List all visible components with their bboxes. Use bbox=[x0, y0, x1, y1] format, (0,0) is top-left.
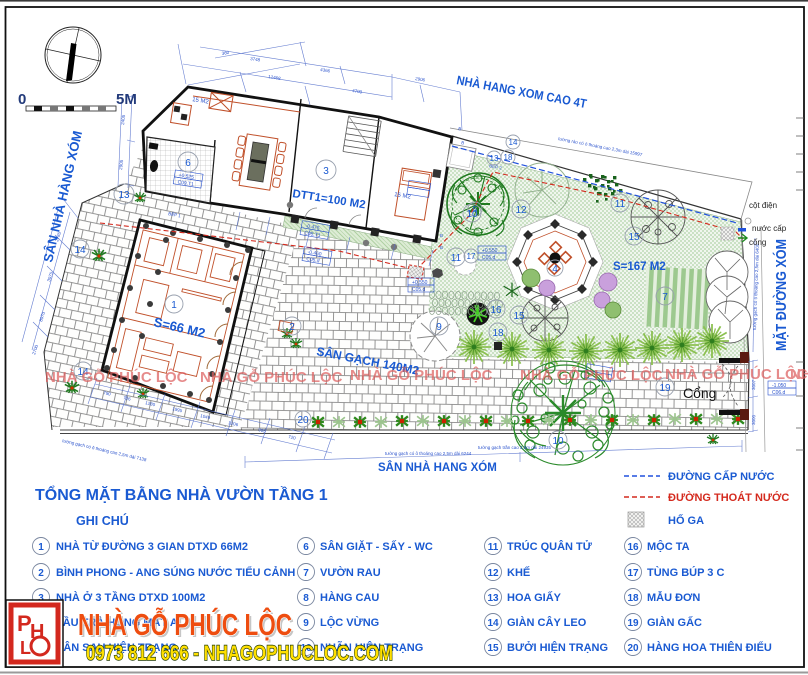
svg-text:3000: 3000 bbox=[751, 414, 756, 425]
svg-text:11: 11 bbox=[488, 542, 499, 553]
svg-text:6: 6 bbox=[303, 542, 309, 553]
svg-text:C06.d: C06.d bbox=[772, 390, 786, 396]
svg-text:12: 12 bbox=[515, 205, 527, 216]
svg-text:B: B bbox=[440, 233, 443, 238]
svg-text:+0.550: +0.550 bbox=[412, 280, 428, 286]
svg-text:L: L bbox=[20, 638, 31, 658]
svg-text:17: 17 bbox=[467, 252, 476, 261]
svg-text:NHÀ GỖ PHÚC LỘC: NHÀ GỖ PHÚC LỘC bbox=[78, 606, 292, 642]
svg-text:14: 14 bbox=[487, 618, 499, 629]
svg-text:BƯỞI HIỆN TRẠNG: BƯỞI HIỆN TRẠNG bbox=[507, 641, 608, 654]
svg-text:S=167 M2: S=167 M2 bbox=[613, 261, 666, 273]
svg-text:19: 19 bbox=[627, 618, 639, 629]
svg-text:17: 17 bbox=[627, 568, 639, 579]
svg-text:nước cấp: nước cấp bbox=[752, 224, 787, 233]
svg-text:7: 7 bbox=[303, 568, 309, 579]
svg-text:1: 1 bbox=[38, 542, 44, 553]
svg-text:7: 7 bbox=[662, 292, 668, 303]
svg-text:NHÀ TỪ ĐƯỜNG 3 GIAN DTXD 66M2: NHÀ TỪ ĐƯỜNG 3 GIAN DTXD 66M2 bbox=[56, 540, 248, 553]
svg-text:NHÀ GỖ PHÚC LỘC: NHÀ GỖ PHÚC LỘC bbox=[200, 368, 343, 386]
svg-text:tường gạch trần cao 2,5m dài 2: tường gạch trần cao 2,5m dài 24935 bbox=[478, 445, 552, 450]
svg-text:HÀNG HOA THIÊN ĐIỂU: HÀNG HOA THIÊN ĐIỂU bbox=[647, 641, 772, 654]
svg-text:5M: 5M bbox=[116, 91, 137, 108]
svg-text:14: 14 bbox=[74, 245, 86, 256]
svg-text:13: 13 bbox=[118, 190, 130, 201]
svg-text:2: 2 bbox=[38, 568, 44, 579]
svg-text:C05.d: C05.d bbox=[482, 255, 496, 261]
svg-text:GIÀN GẤC: GIÀN GẤC bbox=[647, 616, 702, 629]
svg-text:0: 0 bbox=[18, 91, 26, 108]
svg-text:B: B bbox=[440, 245, 443, 250]
svg-text:tường gạch có ô thoáng cao 2,5: tường gạch có ô thoáng cao 2,5m dài 6244 bbox=[385, 451, 472, 456]
svg-text:8: 8 bbox=[303, 593, 309, 604]
svg-text:KHẾ: KHẾ bbox=[507, 566, 530, 579]
svg-text:Cổng: Cổng bbox=[683, 385, 716, 401]
svg-text:ĐƯỜNG THOÁT NƯỚC: ĐƯỜNG THOÁT NƯỚC bbox=[668, 491, 789, 504]
svg-text:6: 6 bbox=[185, 158, 191, 169]
svg-text:MẶT ĐƯỜNG XÓM: MẶT ĐƯỜNG XÓM bbox=[772, 239, 790, 351]
svg-text:VƯỜN RAU: VƯỜN RAU bbox=[320, 566, 381, 579]
svg-text:GHI CHÚ: GHI CHÚ bbox=[76, 513, 129, 528]
svg-text:3: 3 bbox=[323, 166, 329, 177]
svg-text:16: 16 bbox=[490, 305, 502, 316]
svg-text:13: 13 bbox=[490, 154, 499, 163]
svg-text:NHÀ GỖ PHÚC LỘC: NHÀ GỖ PHÚC LỘC bbox=[520, 366, 663, 384]
svg-text:LỘC VỪNG: LỘC VỪNG bbox=[320, 616, 379, 629]
svg-text:2: 2 bbox=[289, 322, 295, 333]
svg-text:NHÀ GỖ PHÚC LỘC: NHÀ GỖ PHÚC LỘC bbox=[45, 368, 188, 386]
svg-text:GIÀN CÂY LEO: GIÀN CÂY LEO bbox=[507, 616, 587, 629]
svg-text:HOA GIẤY: HOA GIẤY bbox=[507, 591, 562, 604]
svg-text:cống: cống bbox=[749, 238, 766, 247]
svg-text:18: 18 bbox=[504, 153, 513, 162]
svg-text:C05.d: C05.d bbox=[412, 287, 426, 293]
svg-text:SÂN GIẶT - SẤY - WC: SÂN GIẶT - SẤY - WC bbox=[320, 540, 433, 553]
svg-text:TÙNG BÚP 3 C: TÙNG BÚP 3 C bbox=[647, 566, 724, 579]
svg-text:5: 5 bbox=[473, 205, 478, 214]
svg-text:BÌNH PHONG - ANG SÚNG NƯỚC TIỂ: BÌNH PHONG - ANG SÚNG NƯỚC TIỂU CẢNH bbox=[56, 566, 295, 579]
svg-text:MỘC TA: MỘC TA bbox=[647, 540, 690, 553]
svg-text:+0.550: +0.550 bbox=[482, 248, 498, 254]
svg-text:14: 14 bbox=[509, 138, 518, 147]
svg-text:NH: NH bbox=[790, 366, 808, 383]
svg-text:TỔNG MẶT BẰNG NHÀ VƯỜN TẦNG 1: TỔNG MẶT BẰNG NHÀ VƯỜN TẦNG 1 bbox=[35, 485, 328, 504]
svg-text:NHÀ Ở 3 TẦNG DTXD 100M2: NHÀ Ở 3 TẦNG DTXD 100M2 bbox=[56, 591, 205, 604]
svg-text:NHÀ GỖ PHÚC LỘC: NHÀ GỖ PHÚC LỘC bbox=[350, 366, 493, 384]
svg-text:18: 18 bbox=[492, 328, 504, 339]
svg-text:11: 11 bbox=[451, 253, 462, 264]
svg-text:HÀNG CAU: HÀNG CAU bbox=[320, 591, 379, 604]
svg-text:NHÀ GỖ PHÚC LỘC: NHÀ GỖ PHÚC LỘC bbox=[665, 365, 808, 383]
svg-text:cột điện: cột điện bbox=[749, 201, 777, 210]
svg-text:15: 15 bbox=[487, 643, 499, 654]
svg-text:19: 19 bbox=[659, 383, 671, 394]
svg-text:12: 12 bbox=[487, 568, 499, 579]
svg-text:18: 18 bbox=[627, 593, 639, 604]
svg-text:15: 15 bbox=[628, 232, 640, 243]
svg-text:-1.050: -1.050 bbox=[772, 383, 786, 389]
svg-text:20: 20 bbox=[627, 643, 639, 654]
svg-text:SÂN NHÀ HANG XÓM: SÂN NHÀ HANG XÓM bbox=[378, 461, 497, 474]
svg-text:11: 11 bbox=[615, 199, 626, 210]
svg-text:16: 16 bbox=[627, 542, 639, 553]
svg-text:15: 15 bbox=[513, 311, 525, 322]
svg-text:TRÚC QUÂN TỬ: TRÚC QUÂN TỬ bbox=[507, 540, 593, 553]
svg-text:4: 4 bbox=[552, 264, 558, 275]
svg-text:10: 10 bbox=[552, 436, 564, 447]
svg-text:0973 812 666 - NHAGOPHUCLOC.CO: 0973 812 666 - NHAGOPHUCLOC.COM bbox=[86, 641, 393, 665]
svg-text:13: 13 bbox=[487, 593, 499, 604]
svg-text:1: 1 bbox=[171, 300, 177, 311]
svg-text:20: 20 bbox=[297, 415, 309, 426]
svg-text:9: 9 bbox=[436, 322, 442, 333]
svg-text:MẪU ĐƠN: MẪU ĐƠN bbox=[647, 591, 700, 604]
svg-text:HỐ GA: HỐ GA bbox=[668, 513, 704, 527]
svg-text:9: 9 bbox=[303, 618, 309, 629]
svg-text:ĐƯỜNG CẤP NƯỚC: ĐƯỜNG CẤP NƯỚC bbox=[668, 470, 775, 483]
